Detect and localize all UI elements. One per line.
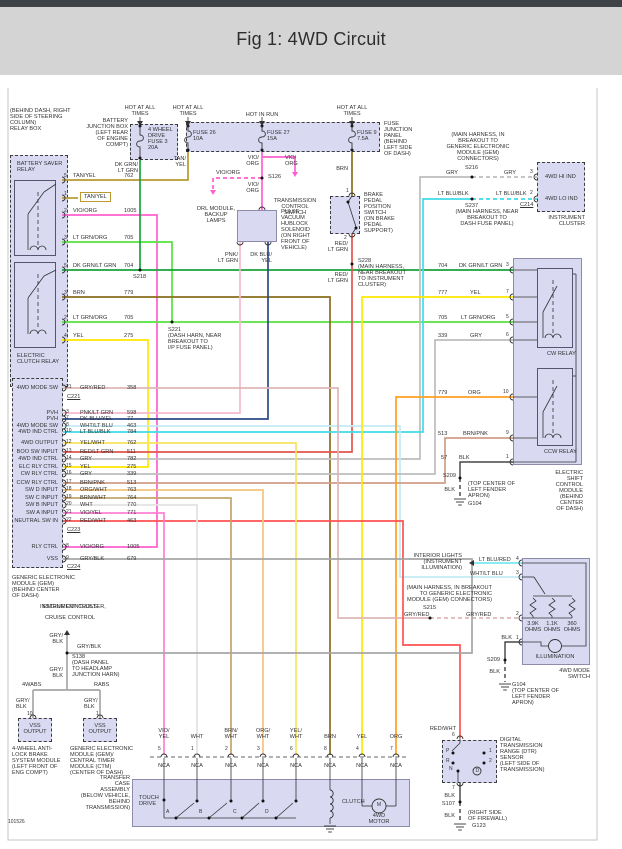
diagram-label: RED/ LT GRN xyxy=(328,241,348,253)
diagram-label: BLK xyxy=(459,455,470,461)
diagram-label: S138 (DASH PANEL TO HEADLAMP JUNCTION HA… xyxy=(72,654,120,678)
diagram-label: 3 xyxy=(64,291,67,296)
diagram-label: NCA xyxy=(356,763,368,769)
circuit-line xyxy=(522,642,548,646)
circuit-line xyxy=(543,286,557,312)
diagram-label: 762 xyxy=(127,440,136,446)
diagram-label: D xyxy=(476,769,480,774)
wire-blk xyxy=(460,462,513,478)
diagram-label: GRY/RED xyxy=(404,612,429,618)
diagram-label: ORG/WHT xyxy=(80,487,107,493)
diagram-label: BRN xyxy=(73,290,85,296)
diagram-label: NCA xyxy=(324,763,336,769)
diagram-label: 5 xyxy=(158,747,161,752)
diagram-label: YEL xyxy=(80,464,91,470)
diagram-label: 5 xyxy=(64,264,67,269)
clutch-coil-icon xyxy=(330,790,333,818)
screenshot-root: HOT AT ALL TIMESBATTERY JUNCTION BOX (LE… xyxy=(0,0,622,849)
splice-dot xyxy=(483,752,486,755)
diagram-label: VIO/ ORG xyxy=(285,155,298,167)
diagram-label: (MAIN HARNESS, IN BREAKOUT TO GENERIC EL… xyxy=(446,132,509,162)
diagram-label: VIO/ORG xyxy=(80,544,104,550)
diagram-label: DRL MODULE, BACKUP LAMPS xyxy=(197,206,235,224)
diagram-label: 2 xyxy=(530,191,533,196)
circuit-line xyxy=(276,803,293,818)
diagram-label: RLY CTRL xyxy=(31,544,58,550)
diagram-label: TAN/YEL xyxy=(80,192,111,202)
diagram-label: 4WD LO IND xyxy=(545,196,578,202)
diagram-label: DIGITAL TRANSMISSION RANGE (DTR) SENSOR … xyxy=(500,737,544,773)
diagram-label: 1 xyxy=(516,636,519,641)
diagram-label: S215 xyxy=(423,605,436,611)
diagram-label: 6 xyxy=(290,747,293,752)
connector-icon xyxy=(359,754,365,757)
diagram-label: BRN/ WHT xyxy=(224,728,237,740)
diagram-label: 1005 xyxy=(127,544,139,550)
splice-dot xyxy=(66,652,69,655)
circuit-line xyxy=(242,803,259,818)
diagram-label: 275 xyxy=(124,333,133,339)
diagram-label: BRN/PNK xyxy=(80,480,105,486)
splice-dot xyxy=(163,799,166,802)
diagram-label: BOO SW INPUT xyxy=(17,449,58,455)
diagram-label: GRY/ BLK xyxy=(16,698,30,710)
diagram-label: 762 xyxy=(124,173,133,179)
diagram-label: TRANSFER CASE ASSEMBLY (BELOW VEHICLE, B… xyxy=(81,775,130,811)
diagram-label: YEL xyxy=(357,734,368,740)
diagram-label: 8 xyxy=(66,544,69,549)
diagram-label: S126 xyxy=(268,174,281,180)
diagram-label: 57 xyxy=(441,455,447,461)
diagram-label: 7 xyxy=(390,747,393,752)
diagram-label: DK BLU/YEL xyxy=(80,416,112,422)
diagram-label: C224 xyxy=(67,564,80,570)
diagram-label: 1 xyxy=(489,749,492,754)
diagram-label: 1.1K OHMS xyxy=(544,621,561,633)
diagram-label: 5 xyxy=(64,174,67,179)
diagram-label: 763 xyxy=(127,487,136,493)
diagram-label: 4WD MODE SWITCH xyxy=(558,668,590,680)
diagram-label: BLK xyxy=(444,793,455,799)
arrow-icon xyxy=(64,630,70,635)
diagram-label: 2 xyxy=(516,612,519,617)
arrow-icon xyxy=(210,190,216,195)
diagram-label: 3 xyxy=(506,263,509,268)
diagram-label: 2 xyxy=(225,747,228,752)
diagram-label: LT GRN/ORG xyxy=(73,235,107,241)
diagram-label: N xyxy=(449,767,453,772)
circuit-line xyxy=(534,577,545,594)
diagram-label: CRUISE CONTROL xyxy=(45,615,95,621)
connector-icon xyxy=(293,754,299,757)
diagram-label: LT GRN/ORG xyxy=(73,315,107,321)
splice-dot xyxy=(457,770,460,773)
coil-icon xyxy=(30,330,46,334)
diagram-label: GRY xyxy=(504,170,516,176)
diagram-label: GRY xyxy=(80,471,92,477)
diagram-label: 7 xyxy=(66,416,69,421)
diagram-label: 13 xyxy=(66,449,72,454)
diagram-label: HOT AT ALL TIMES xyxy=(173,105,204,117)
diagram-label: 764 xyxy=(127,495,136,501)
diagram-label: M xyxy=(377,803,381,808)
diagram-label: 18 xyxy=(66,487,72,492)
diagram-label: C223 xyxy=(67,527,80,533)
diagram-label: NCA xyxy=(390,763,402,769)
resistor-icon xyxy=(530,598,536,616)
wire-org-wht xyxy=(63,490,263,755)
diagram-label: GRY xyxy=(446,170,458,176)
circuit-line xyxy=(452,743,460,751)
diagram-label: ORG/ WHT xyxy=(256,728,270,740)
arrow-icon xyxy=(137,121,143,126)
diagram-label: 5 xyxy=(506,315,509,320)
diagram-label: C214 xyxy=(520,202,533,208)
fuse-icon xyxy=(185,126,192,150)
diagram-label: SW C INPUT xyxy=(25,495,58,501)
diagram-label: YEL/ WHT xyxy=(290,728,303,740)
coil-icon xyxy=(30,246,46,250)
diagram-label: C221 xyxy=(67,394,80,400)
diagram-label: 19 xyxy=(66,495,72,500)
diagram-label: YEL xyxy=(470,290,481,296)
wiring-diagram: HOT AT ALL TIMESBATTERY JUNCTION BOX (LE… xyxy=(0,0,622,849)
diagram-label: 705 xyxy=(124,315,133,321)
diagram-label: YEL/WHT xyxy=(80,440,105,446)
diagram-label: GRY/ BLK xyxy=(49,667,63,679)
circuit-line xyxy=(28,192,44,214)
diagram-label: 14 xyxy=(66,456,72,461)
component-circle-icon xyxy=(549,640,562,653)
diagram-label: BLK xyxy=(489,669,500,675)
diagram-label: R xyxy=(446,759,450,764)
splice-dot xyxy=(459,477,462,480)
diagram-label: WHT xyxy=(80,502,93,508)
diagram-label: S216 xyxy=(465,165,478,171)
diagram-label: 22 xyxy=(66,518,72,523)
diagram-label: 4WD IND CTRL xyxy=(18,456,58,462)
diagram-label: 20 xyxy=(66,502,72,507)
diagram-label: BRN/WHT xyxy=(80,495,106,501)
diagram-label: S221 (DASH HARN, NEAR BREAKOUT TO I/P FU… xyxy=(168,327,221,351)
diagram-label: 10 xyxy=(66,429,72,434)
diagram-label: S228 (MAIN HARNESS, NEAR BREAKOUT TO INS… xyxy=(358,258,406,288)
diagram-label: 1 xyxy=(346,189,349,194)
splice-dot xyxy=(452,762,455,765)
diagram-label: LT GRN/ORG xyxy=(461,315,495,321)
diagram-label: ORG xyxy=(390,734,403,740)
diagram-label: 704 xyxy=(438,263,447,269)
diagram-label: D xyxy=(265,810,269,815)
diagram-label: SW D INPUT xyxy=(25,487,58,493)
splice-dot xyxy=(139,269,142,272)
connector-icon xyxy=(228,754,234,757)
diagram-label: 101526 xyxy=(8,820,25,825)
diagram-label: NCA xyxy=(257,763,269,769)
wire-brn-wht xyxy=(63,498,231,755)
diagram-label: 463 xyxy=(127,518,136,524)
diagram-label: S209 xyxy=(487,657,500,663)
diagram-label: 679 xyxy=(127,556,136,562)
splice-dot xyxy=(452,752,455,755)
coil-icon xyxy=(545,434,561,438)
diagram-label: BRAKE PEDAL POSITION SWITCH (ON BRAKE PE… xyxy=(364,192,395,234)
diagram-label: VIO/YEL xyxy=(80,510,102,516)
diagram-label: ELECTRIC CLUTCH RELAY xyxy=(17,353,59,365)
circuit-line xyxy=(176,803,194,818)
diagram-label: 358 xyxy=(127,385,136,391)
diagram-label: 339 xyxy=(438,333,447,339)
diagram-label: C xyxy=(233,810,237,815)
coil-icon xyxy=(545,334,561,338)
diagram-label: 10 xyxy=(503,390,509,395)
diagram-label: ENGINE CONTROLS xyxy=(43,604,97,610)
diagram-label: 9 xyxy=(66,556,69,561)
diagram-label: HOT AT ALL TIMES xyxy=(125,105,156,117)
diagram-label: LT BLU/BLK xyxy=(80,429,111,435)
diagram-label: TAN/ YEL xyxy=(174,156,186,168)
arrow-icon xyxy=(259,121,265,126)
diagram-label: 77 xyxy=(127,416,133,422)
diagram-label: BATTERY SAVER RELAY xyxy=(17,161,62,173)
diagram-label: 8 xyxy=(324,747,327,752)
diagram-label: 4WABS xyxy=(22,682,41,688)
circuit-line xyxy=(348,202,356,227)
diagram-label: PULSE VACUUM HUBLOCK SOLENOID (ON RIGHT … xyxy=(281,209,310,251)
diagram-label: 1 xyxy=(506,455,509,460)
diagram-label: LT BLU/BLK xyxy=(438,191,469,197)
splice-dot xyxy=(471,176,474,179)
diagram-label: GENERIC ELECTRONIC MODULE (GEM)/ CENTRAL… xyxy=(70,746,133,776)
diagram-label: DK GRN/LT GRN xyxy=(459,263,502,269)
diagram-label: 4WD IND CTRL xyxy=(18,429,58,435)
diagram-label: VIO/ ORG xyxy=(246,182,259,194)
diagram-label: 4 WHEEL DRIVE FUSE 3 20A xyxy=(148,127,173,151)
diagram-label: DK GRN/LT GRN xyxy=(73,263,116,269)
diagram-label: FUSE 9 7.5A xyxy=(357,130,377,142)
diagram-label: 7 xyxy=(506,290,509,295)
diagram-label: 777 xyxy=(438,290,447,296)
wire-vio-yel xyxy=(63,513,164,755)
diagram-label: 4 xyxy=(356,747,359,752)
diagram-label: 704 xyxy=(124,263,133,269)
circuit-line xyxy=(522,563,586,646)
diagram-label: BRN xyxy=(336,166,348,172)
diagram-label: G104 (TOP CENTER OF LEFT FENDER APRON) xyxy=(512,682,559,706)
diagram-label: CCW RLY CTRL xyxy=(17,480,58,486)
diagram-label: DK BLU/ YEL xyxy=(250,252,272,264)
diagram-label: (RIGHT SIDE OF FIREWALL) xyxy=(468,810,507,822)
diagram-label: 3 xyxy=(516,571,519,576)
splice-dot xyxy=(471,198,474,201)
splice-dot xyxy=(175,817,178,820)
diagram-label: NCA xyxy=(290,763,302,769)
diagram-label: S107 xyxy=(442,801,455,807)
diagram-label: G123 xyxy=(472,823,486,829)
diagram-label: 16 xyxy=(66,471,72,476)
resistor-icon xyxy=(549,598,555,616)
diagram-label: HOT AT ALL TIMES xyxy=(337,105,368,117)
diagram-label: CW RLY CTRL xyxy=(21,471,58,477)
diagram-label: NCA xyxy=(225,763,237,769)
connector-icon xyxy=(260,754,266,757)
diagram-label: BATTERY JUNCTION BOX (LEFT REAR OF ENGIN… xyxy=(86,118,128,148)
resistor-icon xyxy=(569,598,575,616)
diagram-label: FUSE JUNCTION PANEL (BEHIND LEFT SIDE OF… xyxy=(384,121,412,157)
diagram-label: GRY xyxy=(80,456,92,462)
diagram-label: 705 xyxy=(438,315,447,321)
diagram-label: ELC RLY CTRL xyxy=(19,464,58,470)
diagram-label: 4WD OUTPUT xyxy=(21,440,58,446)
diagram-label: 17 xyxy=(66,480,72,485)
diagram-label: 3.9K OHMS xyxy=(525,621,542,633)
diagram-label: 3 xyxy=(64,236,67,241)
diagram-label: 4WD MODE SW xyxy=(17,385,58,391)
connector-icon xyxy=(393,754,399,757)
diagram-label: 705 xyxy=(124,235,133,241)
diagram-label: ILLUMINATION xyxy=(536,654,575,660)
diagram-label: 2 xyxy=(489,759,492,764)
diagram-label: 2 xyxy=(64,209,67,214)
diagram-label: 10 xyxy=(27,712,33,717)
diagram-label: 21 xyxy=(66,385,72,390)
diagram-label: 1 xyxy=(64,192,67,197)
diagram-label: PVH xyxy=(46,416,58,422)
diagram-label: 513 xyxy=(127,480,136,486)
diagram-label: 784 xyxy=(127,429,136,435)
diagram-label: INTERIOR LIGHTS (INSTRUMENT ILLUMINATION… xyxy=(414,553,462,571)
connector-icon xyxy=(194,754,200,757)
diagram-label: 3 xyxy=(530,170,533,175)
diagram-label: 6 xyxy=(506,333,509,338)
circuit-line xyxy=(28,276,44,298)
fuse-icon xyxy=(349,126,356,150)
diagram-label: B xyxy=(199,810,202,815)
diagram-label: GRY/BLK xyxy=(77,644,101,650)
diagram-label: SW A INPUT xyxy=(26,510,58,516)
diagram-label: NCA xyxy=(191,763,203,769)
circuit-line xyxy=(543,386,557,412)
splice-dot xyxy=(262,800,265,803)
wire-gry-red xyxy=(63,388,430,618)
diagram-label: BRN/PNK xyxy=(463,431,488,437)
diagram-label: 4 xyxy=(516,557,519,562)
diagram-label: LT BLU/BLK xyxy=(496,191,527,197)
diagram-label: SW B INPUT xyxy=(25,502,58,508)
diagram-label: FUSE 26 10A xyxy=(193,130,216,142)
diagram-label: BLK xyxy=(501,635,512,641)
diagram-label: VIO/ORG xyxy=(73,208,97,214)
splice-dot xyxy=(459,801,462,804)
wire-blk xyxy=(505,642,522,660)
diagram-label: TAN/YEL xyxy=(73,173,96,179)
diagram-label: VSS xyxy=(47,556,58,562)
splice-dot xyxy=(275,817,278,820)
splice-dot xyxy=(230,800,233,803)
diagram-label: BLK xyxy=(444,487,455,493)
diagram-label: VSS OUTPUT xyxy=(24,723,47,735)
wire-gry-blk xyxy=(63,559,472,653)
diagram-label: 1 xyxy=(191,747,194,752)
diagram-label: 9 xyxy=(506,431,509,436)
diagram-label: VSS OUTPUT xyxy=(89,723,112,735)
diagram-label: GRY xyxy=(470,333,482,339)
diagram-label: S209 xyxy=(443,473,456,479)
diagram-label: 21 xyxy=(66,510,72,515)
diagram-label: CCW RELAY xyxy=(544,449,577,455)
diagram-label: 275 xyxy=(127,464,136,470)
diagram-label: RABS xyxy=(94,682,109,688)
diagram-label: RED/ LT GRN xyxy=(328,272,348,284)
arrow-icon xyxy=(349,121,355,126)
arrow-icon xyxy=(292,172,298,177)
diagram-label: NEUTRAL SW IN xyxy=(14,518,58,524)
arrow-icon xyxy=(185,121,191,126)
diagram-label: (BEHIND DASH, RIGHT SIDE OF STEERING COL… xyxy=(10,108,71,132)
diagram-label: 1005 xyxy=(124,208,136,214)
diagram-label: ORG xyxy=(468,390,481,396)
wire-lt-grn-org xyxy=(62,242,172,322)
diagram-label: GENERIC ELECTRONIC MODULE (GEM) (BEHIND … xyxy=(12,575,75,599)
diagram-label: VIO/ YEL xyxy=(158,728,169,740)
diagram-label: RED/WHT xyxy=(80,518,106,524)
diagram-label: 360 OHMS xyxy=(564,621,581,633)
diagram-label: G104 xyxy=(468,501,482,507)
diagram-label: FUSE 27 15A xyxy=(267,130,290,142)
diagram-label: GRY/BLK xyxy=(80,556,104,562)
splice-dot xyxy=(483,762,486,765)
diagram-label: 12 xyxy=(66,440,72,445)
diagram-label: (TOP CENTER OF LEFT FENDER APRON) xyxy=(468,481,515,499)
diagram-label: 339 xyxy=(127,471,136,477)
diagram-label: P xyxy=(446,749,449,754)
diagram-label: 4 xyxy=(64,334,67,339)
splice-dot xyxy=(351,263,354,266)
diagram-label: 6 xyxy=(452,733,455,738)
diagram-label: 782 xyxy=(127,456,136,462)
diagram-label: 4WD HI IND xyxy=(545,174,576,180)
diagram-label: GRY/ BLK xyxy=(84,698,98,710)
wire-wht xyxy=(63,505,197,755)
splice-dot xyxy=(347,201,350,204)
diagram-label: 513 xyxy=(438,431,447,437)
diagram-label: TOUCH DRIVE xyxy=(139,795,159,807)
diagram-label: RED/LT GRN xyxy=(80,449,113,455)
wire-yel xyxy=(62,340,148,467)
diagram-label: NCA xyxy=(158,763,170,769)
splice-dot xyxy=(355,227,358,230)
splice-dot xyxy=(504,659,507,662)
diagram-label: CLUTCH xyxy=(342,799,365,805)
diagram-label: 779 xyxy=(124,290,133,296)
diagram-label: 3 xyxy=(257,747,260,752)
diagram-label: VIO/ ORG xyxy=(246,155,259,167)
diagram-label: (MAIN HARNESS, NEAR BREAKOUT TO DASH FUS… xyxy=(455,209,518,227)
diagram-label: 771 xyxy=(127,510,136,516)
diagram-label: (MAIN HARNESS, IN BREAKOUT TO GENERIC EL… xyxy=(407,585,492,603)
fuse-icon xyxy=(137,126,144,158)
splice-dot xyxy=(196,800,199,803)
diagram-label: 4-WHEEL ANTI- LOCK BRAKE SYSTEM MODULE (… xyxy=(12,746,61,776)
diagram-label: HOT IN RUN xyxy=(246,112,279,118)
diagram-label: 4WD MOTOR xyxy=(369,813,390,825)
diagram-label: 2 xyxy=(64,316,67,321)
diagram-label: 779 xyxy=(438,390,447,396)
diagram-label: 770 xyxy=(127,502,136,508)
diagram-label: LT BLU/RED xyxy=(479,557,511,563)
fuse-icon xyxy=(259,126,266,150)
diagram-label: 1 xyxy=(96,712,99,717)
